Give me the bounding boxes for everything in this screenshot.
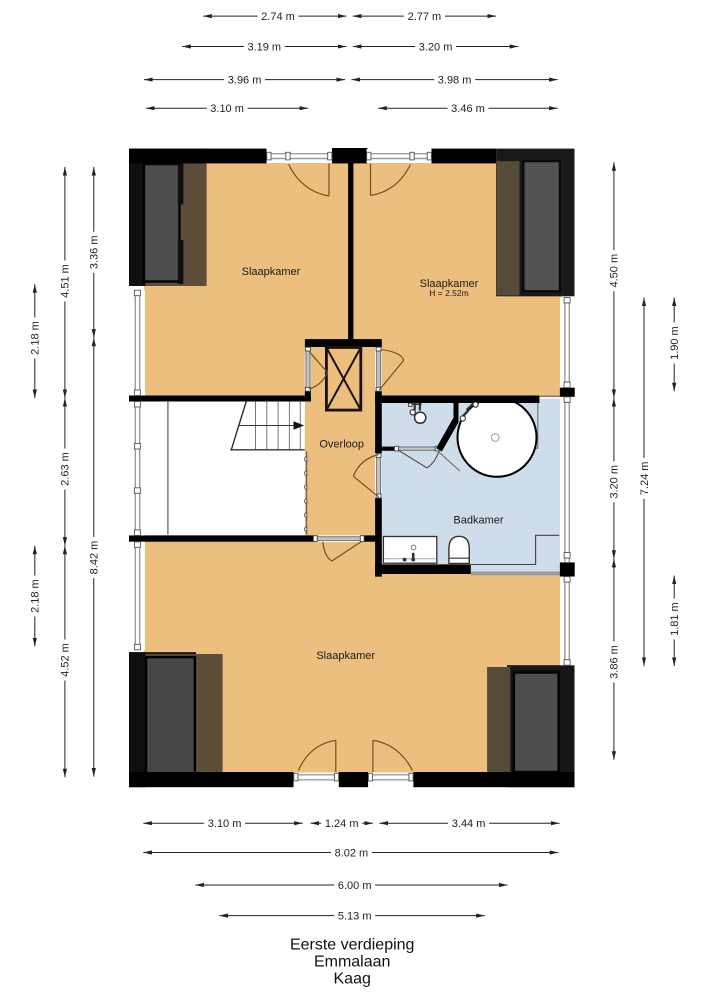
svg-text:Slaapkamer: Slaapkamer [242, 266, 301, 278]
svg-text:Slaapkamer: Slaapkamer [316, 650, 375, 662]
svg-text:5.13 m: 5.13 m [338, 910, 372, 922]
svg-text:4.50 m: 4.50 m [609, 254, 621, 288]
svg-text:Emmalaan: Emmalaan [314, 953, 390, 970]
svg-text:3.36 m: 3.36 m [89, 235, 101, 269]
svg-text:3.10 m: 3.10 m [210, 103, 244, 115]
svg-text:3.86 m: 3.86 m [609, 645, 621, 679]
svg-text:Kaag: Kaag [334, 970, 371, 987]
svg-text:2.77 m: 2.77 m [408, 11, 442, 23]
svg-text:1.81 m: 1.81 m [669, 602, 681, 636]
svg-text:3.96 m: 3.96 m [228, 74, 262, 86]
svg-text:3.44 m: 3.44 m [452, 818, 486, 830]
svg-text:3.46 m: 3.46 m [451, 103, 485, 115]
svg-text:3.98 m: 3.98 m [438, 74, 472, 86]
svg-text:Overloop: Overloop [319, 439, 364, 451]
svg-text:1.90 m: 1.90 m [669, 326, 681, 360]
svg-text:8.42 m: 8.42 m [89, 541, 101, 575]
svg-text:1.24 m: 1.24 m [325, 818, 359, 830]
svg-text:3.20 m: 3.20 m [609, 465, 621, 499]
svg-text:3.20 m: 3.20 m [419, 41, 453, 53]
svg-text:3.10 m: 3.10 m [208, 818, 242, 830]
svg-text:H = 2.52m: H = 2.52m [429, 288, 468, 298]
svg-text:Badkamer: Badkamer [453, 514, 503, 526]
svg-text:7.24 m: 7.24 m [639, 462, 651, 496]
svg-text:2.18 m: 2.18 m [30, 579, 42, 613]
svg-text:3.19 m: 3.19 m [247, 41, 281, 53]
svg-text:Eerste verdieping: Eerste verdieping [290, 936, 415, 953]
svg-text:2.74 m: 2.74 m [261, 11, 295, 23]
svg-text:6.00 m: 6.00 m [338, 880, 372, 892]
svg-text:2.63 m: 2.63 m [60, 452, 72, 486]
svg-text:2.18 m: 2.18 m [30, 321, 42, 355]
svg-text:8.02 m: 8.02 m [335, 847, 369, 859]
svg-text:4.51 m: 4.51 m [60, 264, 72, 298]
svg-text:4.52 m: 4.52 m [60, 643, 72, 677]
